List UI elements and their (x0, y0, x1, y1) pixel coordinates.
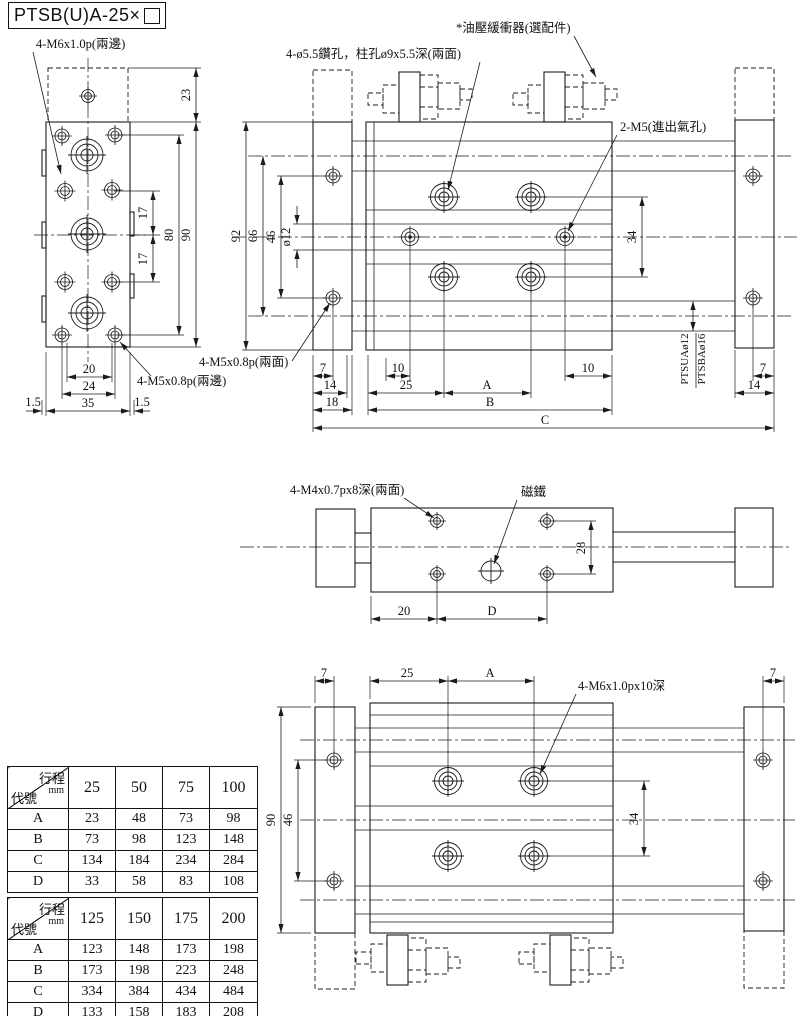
dim-10b: 10 (582, 361, 595, 375)
dim-7-left: 7 (320, 361, 326, 375)
table-row: A 23 48 73 98 (8, 809, 258, 830)
stroke-table-1: 行程 mm 代號 25 50 75 100 A 23 48 73 98 B 73… (7, 766, 258, 893)
stroke-table-1-wrap: 行程 mm 代號 25 50 75 100 A 23 48 73 98 B 73… (7, 766, 258, 893)
counterbore-label: 4-ø5.5鑽孔，柱孔ø9x5.5深(兩面) (286, 46, 461, 61)
m6-deep-thread-label: 4-M6x1.0px10深 (578, 679, 665, 693)
cell: 148 (116, 940, 163, 961)
dim-34: 34 (627, 812, 641, 825)
col-header: 200 (210, 898, 258, 940)
top-view: 28 20 D 4-M4x0.7px8深(兩面) 磁鐵 (240, 483, 790, 624)
corner-label-code: 代號 (11, 919, 37, 938)
magnet-hole (478, 558, 504, 584)
damper-label: *油壓緩衝器(選配件) (456, 21, 571, 35)
right-end-plate (735, 508, 773, 587)
front-view: 4-M6x1.0p(兩邊) 4-M5x0.8p(兩邊) 23 90 80 17 … (25, 37, 226, 416)
cell: 183 (163, 1003, 210, 1016)
dim-90: 90 (264, 814, 278, 827)
front-thread-label-2: 4-M5x0.8p(兩邊) (137, 374, 226, 388)
right-end-plate (735, 120, 774, 348)
table-row: B 73 98 123 148 (8, 830, 258, 851)
row-code: C (8, 982, 69, 1003)
dim-20: 20 (398, 604, 411, 618)
table-corner-cell: 行程 mm 代號 (8, 898, 69, 940)
cylinder-body (370, 703, 613, 933)
dim-28: 28 (574, 542, 588, 555)
col-header: 75 (163, 767, 210, 809)
cell: 48 (116, 809, 163, 830)
cell: 208 (210, 1003, 258, 1016)
corner-label-unit: mm (48, 785, 64, 796)
row-code: C (8, 851, 69, 872)
dim-10a: 10 (392, 361, 405, 375)
table-header-row: 行程 mm 代號 125 150 175 200 (8, 898, 258, 940)
table-row: C 134 184 234 284 (8, 851, 258, 872)
dim-17a: 17 (136, 207, 150, 220)
m6-inner-holes (55, 180, 123, 293)
dim-25: 25 (401, 666, 414, 680)
col-header: 125 (69, 898, 116, 940)
m4-holes (428, 512, 556, 583)
cell: 73 (163, 809, 210, 830)
model-code-title: PTSB(U)A-25× (8, 2, 166, 29)
cell: 108 (210, 872, 258, 893)
cell: 248 (210, 961, 258, 982)
dim-66: 66 (246, 230, 260, 243)
cell: 23 (69, 809, 116, 830)
left-end-plate (316, 509, 355, 587)
col-header: 175 (163, 898, 210, 940)
table-row: D 33 58 83 108 (8, 872, 258, 893)
dim-90: 90 (179, 229, 193, 242)
table-row: C 334 384 434 484 (8, 982, 258, 1003)
col-header: 50 (116, 767, 163, 809)
table-row: B 173 198 223 248 (8, 961, 258, 982)
dim-46: 46 (281, 814, 295, 827)
dim-7-left: 7 (321, 666, 327, 680)
cell: 158 (116, 1003, 163, 1016)
dim-14-left: 14 (324, 378, 337, 392)
dim-C: C (541, 413, 549, 427)
dim-35: 35 (82, 396, 95, 410)
cell: 384 (116, 982, 163, 1003)
table-row: A 123 148 173 198 (8, 940, 258, 961)
cell: 173 (163, 940, 210, 961)
rod-diameter-label-ptsba: PTSBAø16 (696, 333, 708, 384)
dim-1-5-right: 1.5 (134, 395, 150, 409)
row-code: A (8, 809, 69, 830)
cell: 58 (116, 872, 163, 893)
stroke-table-2-wrap: 行程 mm 代號 125 150 175 200 A 123 148 173 1… (7, 897, 258, 1016)
dim-80: 80 (162, 229, 176, 242)
model-code-text: PTSB(U)A-25× (14, 5, 141, 26)
table-header-row: 行程 mm 代號 25 50 75 100 (8, 767, 258, 809)
dim-14-right: 14 (748, 378, 761, 392)
dim-D: D (487, 604, 496, 618)
rod-hole (79, 87, 97, 105)
cell: 434 (163, 982, 210, 1003)
dim-A: A (482, 378, 491, 392)
cell: 184 (116, 851, 163, 872)
cell: 334 (69, 982, 116, 1003)
cell: 133 (69, 1003, 116, 1016)
corner-label-unit: mm (48, 916, 64, 927)
col-header: 100 (210, 767, 258, 809)
col-header: 150 (116, 898, 163, 940)
dim-7-right: 7 (770, 666, 776, 680)
rod-diameter-label-ptsua: PTSUAø12 (679, 333, 691, 384)
engineering-drawing-page: 4-M6x1.0p(兩邊) 4-M5x0.8p(兩邊) 23 90 80 17 … (0, 0, 800, 1016)
dim-A: A (485, 666, 494, 680)
dim-23: 23 (179, 89, 193, 102)
dim-dia12: ø12 (279, 228, 293, 247)
cell: 98 (116, 830, 163, 851)
front-thread-label: 4-M6x1.0p(兩邊) (36, 37, 125, 51)
dim-24: 24 (83, 379, 96, 393)
cell: 234 (163, 851, 210, 872)
cell: 223 (163, 961, 210, 982)
cell: 484 (210, 982, 258, 1003)
row-code: B (8, 961, 69, 982)
cell: 33 (69, 872, 116, 893)
cell: 148 (210, 830, 258, 851)
cell: 73 (69, 830, 116, 851)
cell: 98 (210, 809, 258, 830)
m6-deep-holes (432, 765, 550, 872)
cell: 173 (69, 961, 116, 982)
dim-46: 46 (264, 231, 278, 244)
m4-thread-label: 4-M4x0.7px8深(兩面) (290, 483, 404, 497)
cell: 123 (163, 830, 210, 851)
cell: 123 (69, 940, 116, 961)
dim-92: 92 (229, 230, 243, 243)
corner-label-code: 代號 (11, 788, 37, 807)
right-end-plate (744, 707, 784, 931)
guide-rod-bores (68, 136, 106, 332)
cell: 284 (210, 851, 258, 872)
stroke-placeholder-box (144, 8, 160, 24)
cell: 198 (210, 940, 258, 961)
col-header: 25 (69, 767, 116, 809)
dim-20: 20 (83, 362, 96, 376)
bottom-view: 7 25 A 7 90 46 34 4-M6x1.0px10深 (264, 666, 795, 989)
table-row: D 133 158 183 208 (8, 1003, 258, 1016)
row-code: A (8, 940, 69, 961)
row-code: D (8, 1003, 69, 1016)
side-thread-label: 4-M5x0.8p(兩面) (199, 355, 288, 369)
dim-18: 18 (326, 395, 339, 409)
port-label: 2-M5(進出氣孔) (620, 120, 706, 134)
dim-7-right: 7 (760, 361, 766, 375)
dim-25: 25 (400, 378, 413, 392)
row-code: D (8, 872, 69, 893)
cell: 134 (69, 851, 116, 872)
stroke-table-2: 行程 mm 代號 125 150 175 200 A 123 148 173 1… (7, 897, 258, 1016)
dim-34: 34 (625, 230, 639, 243)
cell: 83 (163, 872, 210, 893)
table-corner-cell: 行程 mm 代號 (8, 767, 69, 809)
magnet-label: 磁鐵 (521, 484, 547, 499)
dim-B: B (486, 395, 494, 409)
plate-holes (324, 750, 773, 891)
row-code: B (8, 830, 69, 851)
dim-17b: 17 (136, 253, 150, 266)
side-view: 4-ø5.5鑽孔，柱孔ø9x5.5深(兩面) *油壓緩衝器(選配件) 2-M5(… (199, 21, 797, 432)
cell: 198 (116, 961, 163, 982)
dim-1-5-left: 1.5 (25, 395, 41, 409)
